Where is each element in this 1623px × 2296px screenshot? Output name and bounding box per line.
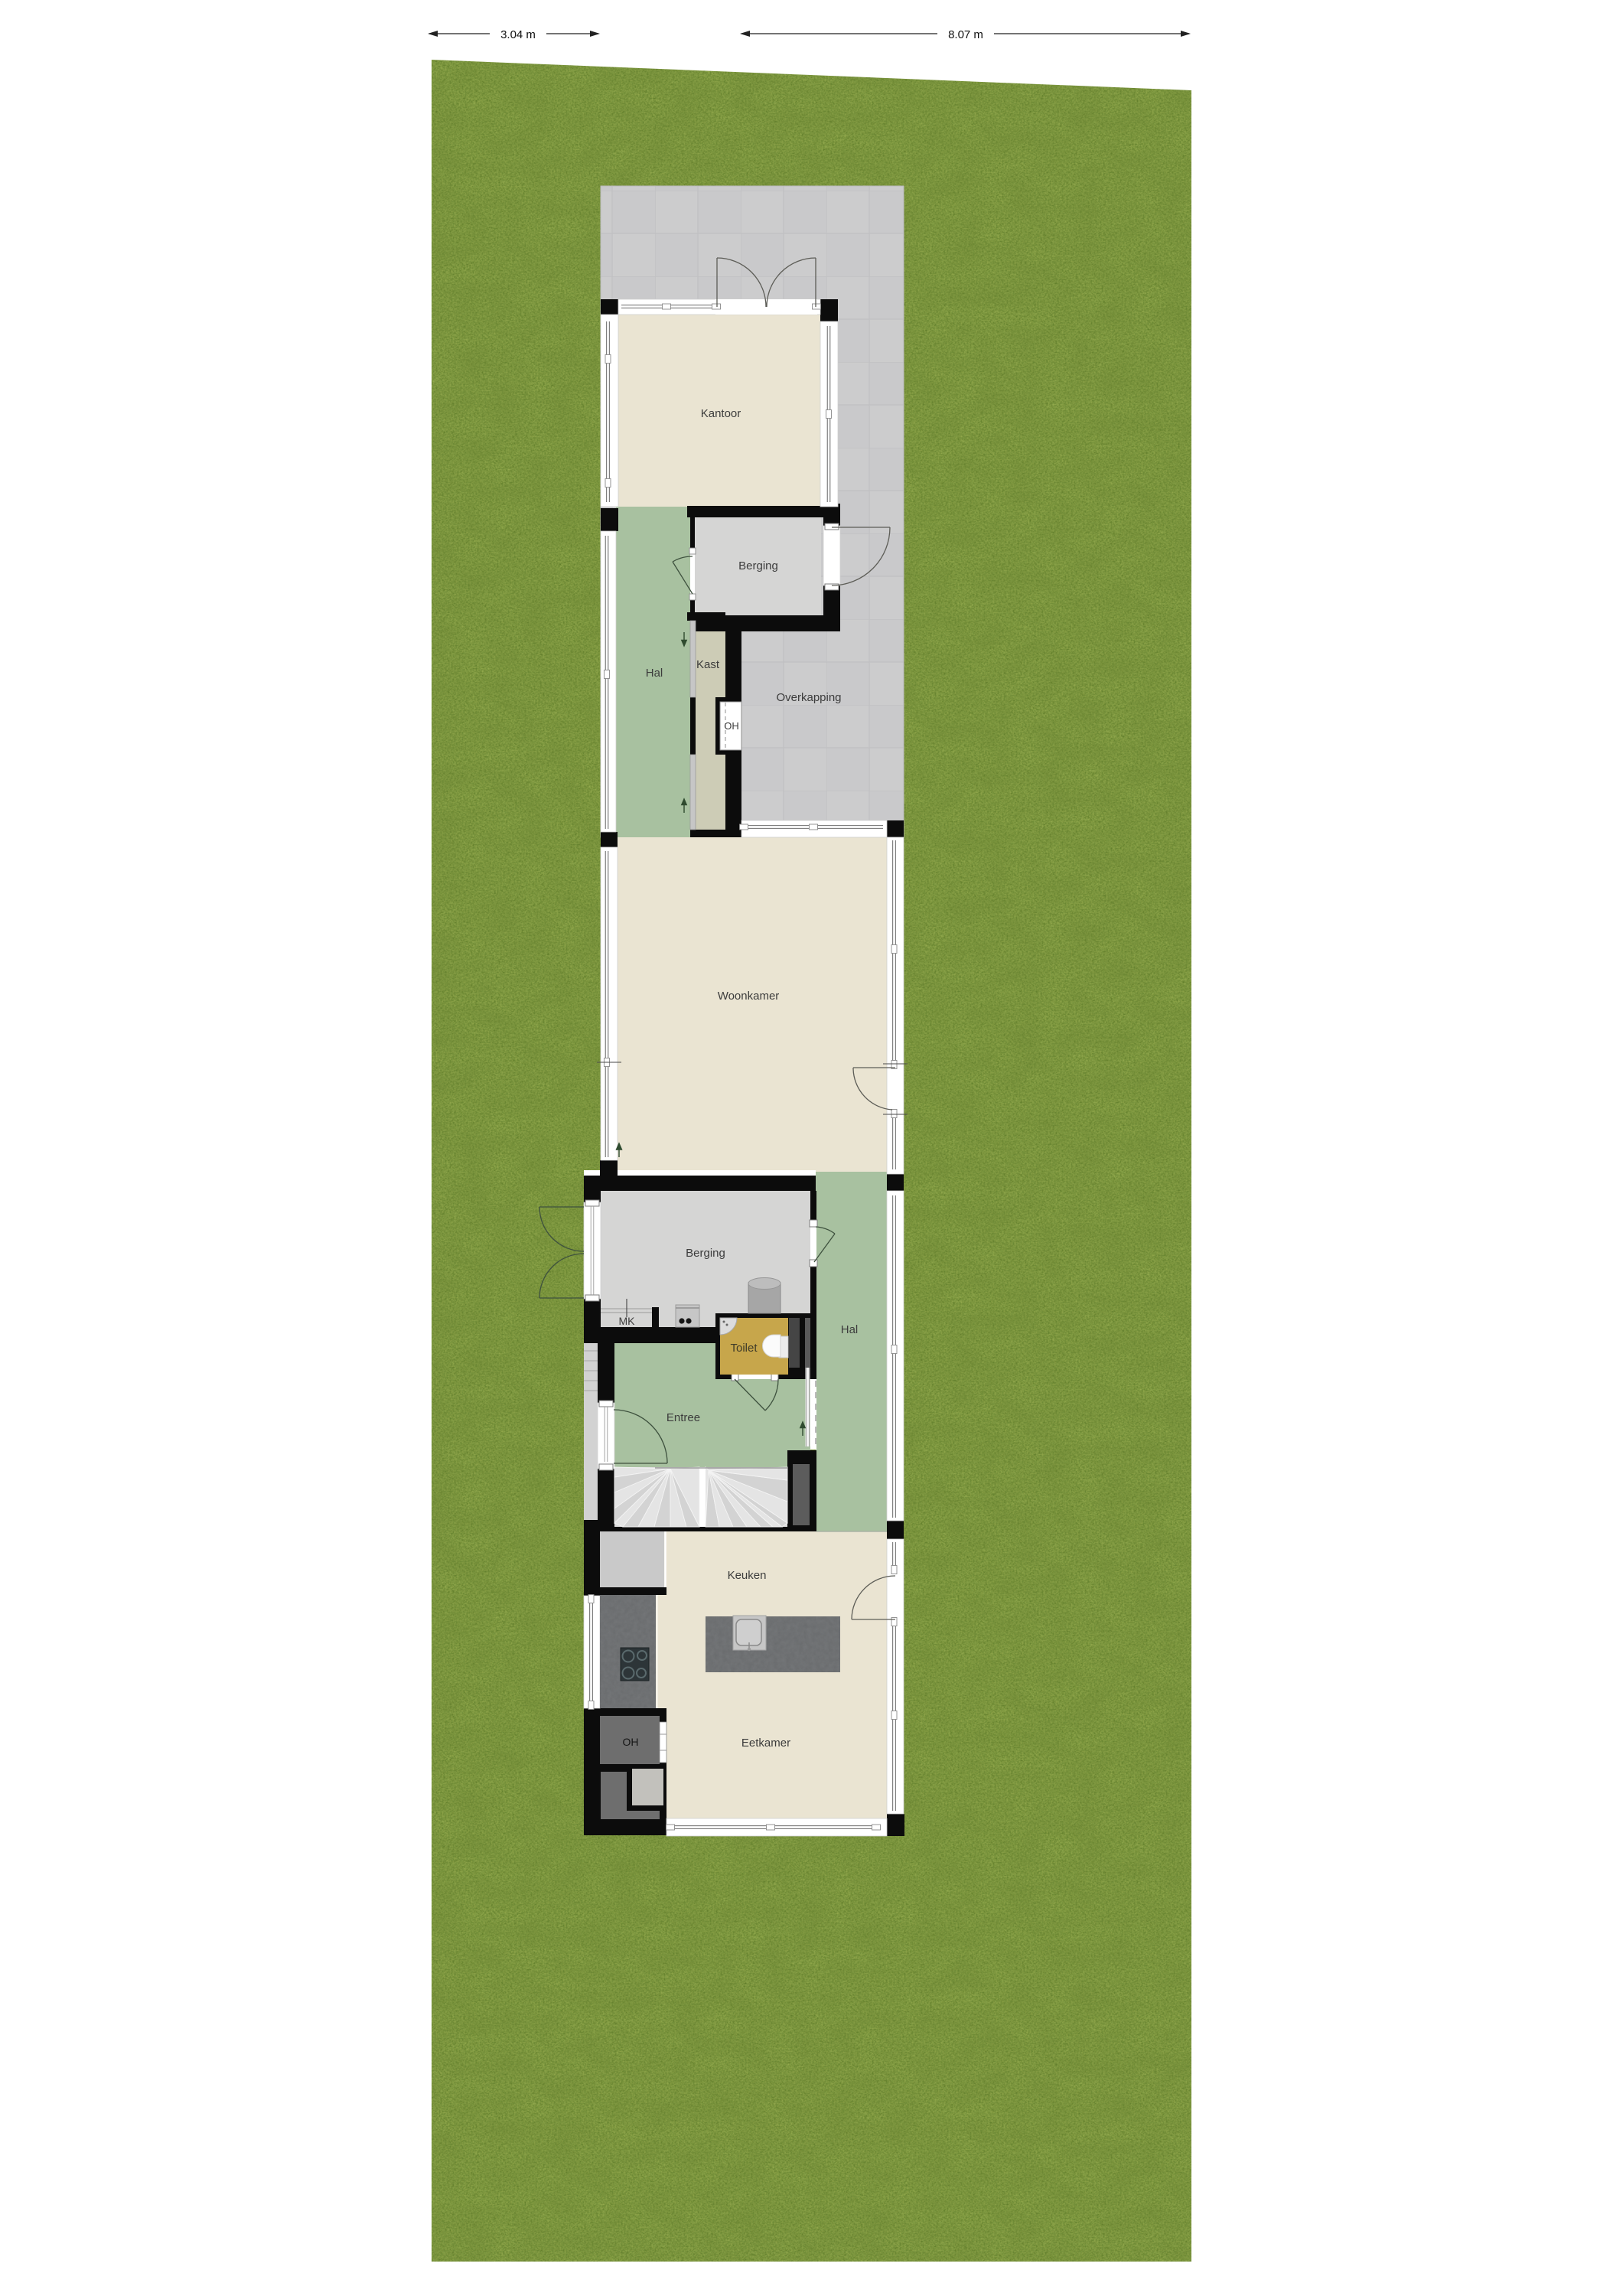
svg-text:8.07 m: 8.07 m bbox=[948, 28, 983, 41]
svg-text:Eetkamer: Eetkamer bbox=[741, 1737, 790, 1750]
svg-text:Berging: Berging bbox=[686, 1247, 725, 1260]
svg-text:Hal: Hal bbox=[646, 667, 663, 680]
svg-text:Overkapping: Overkapping bbox=[776, 691, 841, 704]
svg-text:Hal: Hal bbox=[841, 1323, 859, 1336]
svg-text:OH: OH bbox=[724, 720, 739, 732]
svg-text:Berging: Berging bbox=[738, 559, 778, 572]
svg-text:Toilet: Toilet bbox=[730, 1342, 758, 1355]
svg-text:MK: MK bbox=[619, 1315, 636, 1327]
svg-text:Kast: Kast bbox=[696, 658, 720, 671]
svg-text:Entree: Entree bbox=[666, 1411, 700, 1424]
svg-text:Keuken: Keuken bbox=[728, 1569, 767, 1582]
svg-text:OH: OH bbox=[623, 1736, 639, 1748]
svg-text:Kantoor: Kantoor bbox=[701, 407, 741, 420]
svg-text:3.04 m: 3.04 m bbox=[500, 28, 536, 41]
svg-text:Woonkamer: Woonkamer bbox=[718, 990, 780, 1003]
